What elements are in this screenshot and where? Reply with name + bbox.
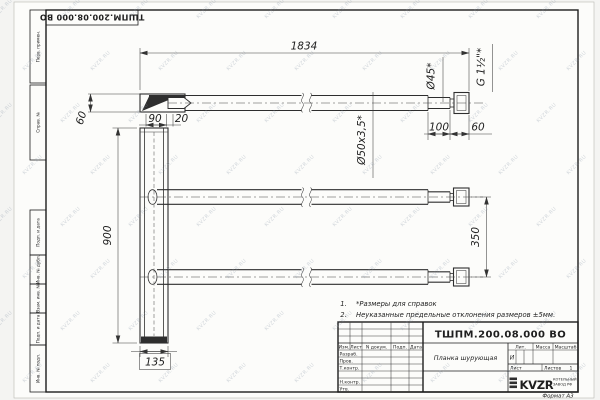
tb-part-name: Планка шурующая <box>434 354 498 362</box>
tb-masshtab-header: Масштаб <box>555 344 577 350</box>
margin-field-podp-data-2: Подп. и дата <box>36 314 41 343</box>
margin-field-perv-primen: Перв. примен. <box>36 31 41 62</box>
kvzr-logo-text: KVZR <box>520 378 554 392</box>
margin-field-sprav-no: Справ. № <box>36 112 41 133</box>
kvzr-logo-sub1: КОТЕЛЬНЫЙ <box>553 377 577 382</box>
note-2-text: Неуказанные предельные отклонения размер… <box>356 311 555 319</box>
dim-thread-length: 60 <box>471 122 485 134</box>
tb-list-label: Лист <box>510 366 522 372</box>
note-1-number: 1. <box>340 300 347 308</box>
dim-pipe-spacing: 350 <box>470 227 482 247</box>
tb-row-utv: Утв. <box>340 387 350 393</box>
tb-listov-label: Листов <box>544 366 561 372</box>
tb-row-prov: Пров. <box>340 359 353 365</box>
dim-total-length: 1834 <box>291 41 318 53</box>
label-thread: G 1½"* <box>476 48 488 86</box>
margin-field-inv-podl: Инв. № подл. <box>36 354 41 383</box>
kvzr-logo-sub2: ЗАВОД РФ <box>553 383 572 387</box>
tb-col-doc: N докум. <box>366 344 387 350</box>
note-2-number: 2. <box>340 311 347 319</box>
format-label: Формат А3 <box>542 394 574 400</box>
tb-row-tkontr: Т.контр. <box>339 366 360 372</box>
dim-end-length: 100 <box>429 122 449 134</box>
label-pipe-spec: Ø50x3,5* <box>356 115 368 166</box>
drawing-svg: Перв. примен. Справ. № Подп. и дата Инв.… <box>0 0 600 400</box>
tb-designation: ТШПМ.200.08.000 ВО <box>435 330 566 341</box>
tb-col-data: Дата <box>410 344 422 350</box>
tb-massa-header: Масса <box>536 344 551 350</box>
dim-plate-width: 135 <box>145 357 165 369</box>
margin-field-vzam-inv: Взам. инв. № <box>36 284 41 313</box>
label-end-dia: Ø45* <box>426 63 438 91</box>
tb-row-razrab: Разраб. <box>340 352 358 358</box>
drawing-sheet: KVZR.RUKVZR.RUKVZR.RUKVZR.RUKVZR.RUKVZR.… <box>0 0 600 400</box>
dim-plate-width-top: 90 <box>148 113 162 125</box>
tb-col-list: Лист <box>350 344 362 350</box>
tb-col-izm: Изм. <box>339 344 350 350</box>
note-1-text: *Размеры для справок <box>356 300 438 308</box>
tb-row-nkontr: Н.контр. <box>340 380 361 386</box>
tb-col-podp: Подп. <box>393 344 407 350</box>
tb-lit-value: И <box>510 355 515 362</box>
top-designation-text: ТШПМ.200.08.000 ВО <box>40 13 145 22</box>
margin-field-inv-dubl: Инв. № дубл. <box>36 255 41 284</box>
dim-plate-gap: 20 <box>175 113 189 125</box>
margin-field-podp-data-1: Подп. и дата <box>36 218 41 247</box>
tb-listov-value: 1 <box>570 366 573 372</box>
dim-plate-height: 900 <box>102 225 114 245</box>
tb-lit-header: Лит. <box>515 344 526 350</box>
